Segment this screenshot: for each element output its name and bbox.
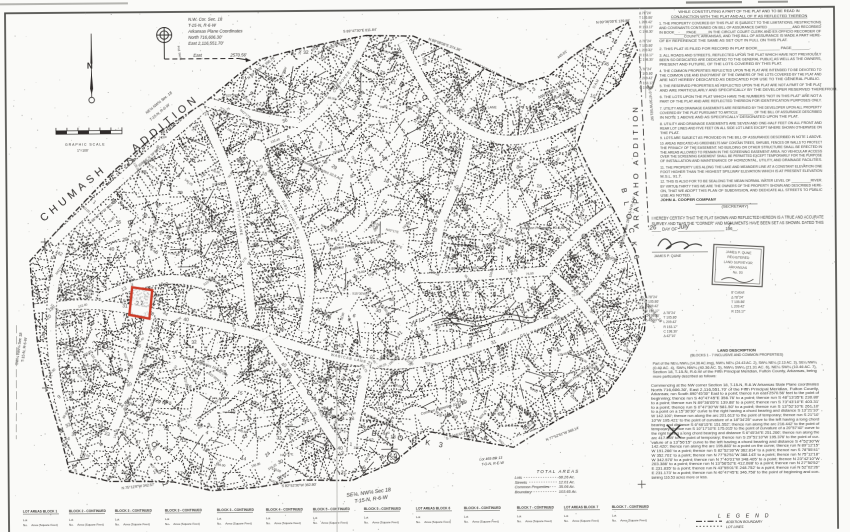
svg-text:N42°17'E: N42°17'E bbox=[280, 452, 293, 457]
svg-text:19: 19 bbox=[536, 183, 542, 190]
svg-text:LOT AREAS BLOCK 6: LOT AREAS BLOCK 6 bbox=[416, 506, 451, 510]
svg-text:R 153.17': R 153.17' bbox=[645, 309, 659, 313]
svg-text:42: 42 bbox=[368, 437, 374, 443]
svg-text:38: 38 bbox=[271, 400, 277, 407]
svg-text:44: 44 bbox=[450, 375, 456, 381]
svg-text:10: 10 bbox=[105, 330, 111, 336]
svg-text:Lot: Lot bbox=[564, 514, 568, 518]
svg-text:No. Area (Square Feet): No. Area (Square Feet) bbox=[464, 519, 499, 523]
svg-text:Lot: Lot bbox=[165, 517, 169, 521]
svg-text:No. Area (Square Feet): No. Area (Square Feet) bbox=[115, 522, 150, 526]
svg-text:R 153.17': R 153.17' bbox=[639, 53, 653, 57]
svg-text:PRESENT AND FUTURE, OF THE LO: PRESENT AND FUTURE, OF THE LOTS COVERED … bbox=[659, 60, 782, 66]
svg-text:North 716,606.30': North 716,606.30' bbox=[188, 35, 222, 40]
svg-text:ADDITION BOUNDARY: ADDITION BOUNDARY bbox=[725, 520, 763, 524]
svg-text:July: July bbox=[676, 223, 690, 231]
svg-text:16: 16 bbox=[295, 266, 301, 272]
svg-text:No. Area (Square Feet): No. Area (Square Feet) bbox=[313, 521, 348, 525]
svg-text:L 209.42': L 209.42' bbox=[640, 76, 654, 80]
svg-text:17: 17 bbox=[58, 294, 64, 300]
svg-text:R 153.17': R 153.17' bbox=[640, 81, 654, 85]
svg-text:37: 37 bbox=[382, 156, 388, 163]
svg-text:15: 15 bbox=[444, 413, 450, 419]
svg-text:No. Area (Square Feet): No. Area (Square Feet) bbox=[23, 523, 58, 527]
svg-text:32: 32 bbox=[303, 50, 309, 56]
svg-text:Lot: Lot bbox=[266, 516, 270, 520]
svg-text:JOHN A. COOPER COMPANY: JOHN A. COOPER COMPANY bbox=[660, 197, 716, 202]
svg-text:N: N bbox=[87, 62, 93, 71]
svg-text:C 198.30': C 198.30' bbox=[664, 329, 678, 333]
svg-text:JAMES P. QUNE: JAMES P. QUNE bbox=[654, 254, 682, 258]
svg-text:40: 40 bbox=[109, 246, 115, 252]
svg-text:B L O C K 4: B L O C K 4 bbox=[424, 289, 500, 299]
svg-text:No. Area (Square Feet): No. Area (Square Feet) bbox=[364, 520, 399, 524]
svg-text:BLOCK 7 - CONTINUED: BLOCK 7 - CONTINUED bbox=[517, 505, 555, 509]
svg-text:BLOCK 7 - CONTINUED: BLOCK 7 - CONTINUED bbox=[612, 505, 650, 509]
svg-text:LOT LINES: LOT LINES bbox=[726, 525, 744, 529]
svg-text:2: 2 bbox=[205, 230, 208, 236]
svg-text:Lot: Lot bbox=[612, 514, 616, 518]
svg-text:No. Area (Square Feet): No. Area (Square Feet) bbox=[217, 521, 252, 525]
svg-text:No. Area (Square Feet): No. Area (Square Feet) bbox=[612, 518, 647, 522]
svg-text:21: 21 bbox=[532, 162, 538, 168]
svg-text:L 209.42': L 209.42' bbox=[645, 304, 659, 308]
svg-text:N42°17'E: N42°17'E bbox=[551, 316, 564, 321]
svg-text:1"=100': 1"=100' bbox=[77, 149, 89, 153]
svg-text:East: East bbox=[193, 53, 202, 58]
svg-text:103.65 Ac.: 103.65 Ac. bbox=[559, 489, 578, 494]
svg-text:C 198.30': C 198.30' bbox=[645, 314, 659, 318]
svg-text:32: 32 bbox=[191, 339, 197, 346]
svg-text:T 105.86': T 105.86' bbox=[639, 44, 653, 48]
svg-text:BLOCK 5 - CONTINUED: BLOCK 5 - CONTINUED bbox=[313, 507, 351, 511]
svg-text:T-15-N, R-6-W: T-15-N, R-6-W bbox=[188, 23, 217, 28]
svg-text:No. Area (Square Feet): No. Area (Square Feet) bbox=[517, 519, 552, 523]
svg-text:T 105.86': T 105.86' bbox=[645, 300, 659, 304]
svg-text:Δ 42°10': Δ 42°10' bbox=[664, 334, 677, 338]
svg-text:29: 29 bbox=[229, 230, 235, 237]
svg-text:Common Properties 10.5 Ac.: Common Properties 10.5 Ac. bbox=[520, 226, 566, 230]
svg-text:L E G E N D: L E G E N D bbox=[718, 513, 771, 519]
svg-text:LAND DESCRIPTION: LAND DESCRIPTION bbox=[717, 347, 756, 352]
svg-text:41: 41 bbox=[599, 388, 605, 394]
svg-text:Arkansas Plane Coordinates: Arkansas Plane Coordinates bbox=[187, 28, 243, 33]
svg-text:CONJUNCTION WITH THE PLAT AND: CONJUNCTION WITH THE PLAT AND ALL OF IT … bbox=[671, 13, 808, 19]
svg-text:No. Area (Square Feet): No. Area (Square Feet) bbox=[416, 520, 451, 524]
svg-text:TOTAL AREAS: TOTAL AREAS bbox=[537, 469, 580, 474]
svg-text:____ DAY OF __________________: ____ DAY OF ____________________ 196__. bbox=[651, 226, 738, 232]
svg-text:Lot: Lot bbox=[517, 514, 521, 518]
svg-text:Lot: Lot bbox=[313, 516, 317, 520]
svg-text:L 209.42': L 209.42' bbox=[639, 48, 653, 52]
svg-text:95.50: 95.50 bbox=[86, 292, 94, 296]
svg-text:Lot: Lot bbox=[416, 515, 420, 519]
svg-text:BLOCK 3 - CONTINUED: BLOCK 3 - CONTINUED bbox=[115, 509, 153, 513]
svg-text:105.75: 105.75 bbox=[353, 446, 363, 451]
svg-text:35: 35 bbox=[406, 105, 412, 111]
svg-text:Δ 78°24': Δ 78°24' bbox=[731, 295, 744, 299]
svg-text:37: 37 bbox=[71, 432, 77, 438]
svg-text:Lot: Lot bbox=[69, 518, 73, 522]
svg-text:No. Area (Square Feet): No. Area (Square Feet) bbox=[165, 522, 200, 526]
svg-text:33: 33 bbox=[390, 456, 396, 462]
svg-text:T 105.86': T 105.86' bbox=[731, 300, 745, 304]
svg-text:14: 14 bbox=[64, 436, 70, 443]
svg-text:N.W. Cor. Sec. 18: N.W. Cor. Sec. 18 bbox=[188, 17, 223, 22]
svg-text:East 2,116,551.70': East 2,116,551.70' bbox=[188, 41, 224, 46]
svg-text:GRAPHIC SCALE: GRAPHIC SCALE bbox=[65, 143, 106, 147]
svg-text:Lot: Lot bbox=[464, 515, 468, 519]
svg-text:25: 25 bbox=[185, 273, 191, 279]
svg-text:17: 17 bbox=[177, 471, 183, 477]
svg-text:38: 38 bbox=[141, 169, 147, 175]
svg-text:88.00: 88.00 bbox=[149, 229, 157, 234]
svg-text:Lot: Lot bbox=[217, 517, 221, 521]
svg-text:45: 45 bbox=[366, 112, 372, 118]
svg-text:22: 22 bbox=[498, 411, 504, 417]
svg-text:17: 17 bbox=[172, 349, 178, 356]
svg-text:6: 6 bbox=[287, 134, 290, 140]
svg-text:OF BY REFERENCE THE SAME AS SE: OF BY REFERENCE THE SAME AS SET OUT IN F… bbox=[659, 37, 787, 43]
svg-text:40: 40 bbox=[230, 409, 236, 415]
svg-text:L 209.42': L 209.42' bbox=[663, 320, 677, 324]
svg-text:T 105.86': T 105.86' bbox=[663, 316, 677, 320]
svg-text:No. 93: No. 93 bbox=[733, 270, 743, 274]
svg-text:27: 27 bbox=[368, 123, 374, 129]
svg-text:ARKANSAS: ARKANSAS bbox=[729, 265, 748, 270]
svg-text:26: 26 bbox=[648, 225, 657, 232]
svg-text:39: 39 bbox=[177, 190, 183, 196]
svg-text:Δ 42°10': Δ 42°10' bbox=[645, 318, 658, 322]
svg-text:40: 40 bbox=[389, 297, 395, 304]
svg-text:Lot: Lot bbox=[23, 518, 27, 522]
svg-text:R 153.17': R 153.17' bbox=[731, 309, 745, 313]
svg-text:16: 16 bbox=[565, 151, 571, 158]
svg-text:37: 37 bbox=[135, 439, 141, 445]
svg-text:S15°30'W: S15°30'W bbox=[226, 93, 240, 97]
svg-text:Δ 78°24': Δ 78°24' bbox=[645, 295, 658, 299]
svg-text:Lot: Lot bbox=[115, 517, 119, 521]
svg-text:No. Area (Square Feet): No. Area (Square Feet) bbox=[266, 521, 301, 525]
svg-text:BLOCK 3 - CONTINUED: BLOCK 3 - CONTINUED bbox=[165, 508, 203, 512]
svg-text:40: 40 bbox=[183, 317, 189, 323]
svg-text:14: 14 bbox=[622, 53, 628, 60]
svg-text:LANE: LANE bbox=[488, 105, 498, 109]
svg-text:8' Cutout: 8' Cutout bbox=[731, 290, 744, 294]
svg-text:R 153.17': R 153.17' bbox=[639, 25, 653, 29]
svg-text:LOT AREAS BLOCK 7: LOT AREAS BLOCK 7 bbox=[564, 505, 599, 509]
svg-text:2 2: 2 2 bbox=[136, 301, 143, 307]
svg-text:105.75: 105.75 bbox=[162, 401, 172, 405]
svg-text:more particularly described as: more particularly described as follows: bbox=[653, 374, 717, 378]
svg-text:No. Area (Square Feet): No. Area (Square Feet) bbox=[69, 523, 104, 527]
svg-text:T 105.86': T 105.86' bbox=[639, 72, 653, 76]
svg-text:132.40: 132.40 bbox=[444, 219, 454, 223]
svg-text:C 198.30': C 198.30' bbox=[639, 58, 653, 62]
svg-text:R 153.17': R 153.17' bbox=[663, 325, 677, 329]
svg-text:76.80: 76.80 bbox=[253, 130, 261, 134]
svg-text:10: 10 bbox=[377, 401, 383, 407]
svg-text:24: 24 bbox=[379, 393, 385, 400]
svg-text:BLOCK 5 - CONTINUED: BLOCK 5 - CONTINUED bbox=[364, 507, 402, 511]
svg-text:L 209.42': L 209.42' bbox=[639, 20, 653, 24]
svg-text:L 209.42': L 209.42' bbox=[731, 305, 745, 309]
svg-text:26: 26 bbox=[116, 219, 122, 225]
svg-text:BLOCK 6 - CONTINUED: BLOCK 6 - CONTINUED bbox=[464, 506, 502, 510]
svg-text:BLOCK 3 - CONTINUED: BLOCK 3 - CONTINUED bbox=[217, 508, 255, 512]
svg-text:No. Area (Square Feet): No. Area (Square Feet) bbox=[564, 519, 599, 523]
svg-text:S15°30'W: S15°30'W bbox=[352, 292, 366, 296]
svg-text:LOT AREAS BLOCK 1: LOT AREAS BLOCK 1 bbox=[23, 509, 58, 513]
svg-text:taining 116.53 acres more or l: taining 116.53 acres more or less. bbox=[652, 475, 708, 479]
svg-text:31: 31 bbox=[390, 370, 396, 377]
svg-text:40: 40 bbox=[356, 375, 362, 381]
svg-text:T 105.86': T 105.86' bbox=[639, 16, 653, 20]
svg-text:12: 12 bbox=[181, 437, 187, 443]
svg-text:(BLOCKS 1 - 7 INCLUSIVE AND CO: (BLOCKS 1 - 7 INCLUSIVE AND COMMON PROPE… bbox=[690, 353, 783, 358]
svg-text:4: 4 bbox=[274, 90, 277, 96]
svg-text:Boundary: Boundary bbox=[515, 489, 533, 494]
svg-text:BLOCK 2 - CONTINUED: BLOCK 2 - CONTINUED bbox=[69, 509, 107, 513]
svg-text:BLOCK 4 - CONTINUED: BLOCK 4 - CONTINUED bbox=[266, 507, 304, 511]
svg-text:88.00: 88.00 bbox=[335, 367, 343, 371]
svg-text:31: 31 bbox=[122, 303, 128, 309]
svg-text:C 198.30': C 198.30' bbox=[639, 30, 653, 34]
svg-text:18: 18 bbox=[586, 391, 592, 397]
svg-text:43: 43 bbox=[117, 193, 123, 200]
svg-text:Δ 78°24': Δ 78°24' bbox=[663, 311, 676, 315]
svg-text:27: 27 bbox=[410, 322, 416, 328]
svg-text:Lot: Lot bbox=[364, 515, 368, 519]
svg-text:2570.56': 2570.56' bbox=[229, 52, 247, 57]
